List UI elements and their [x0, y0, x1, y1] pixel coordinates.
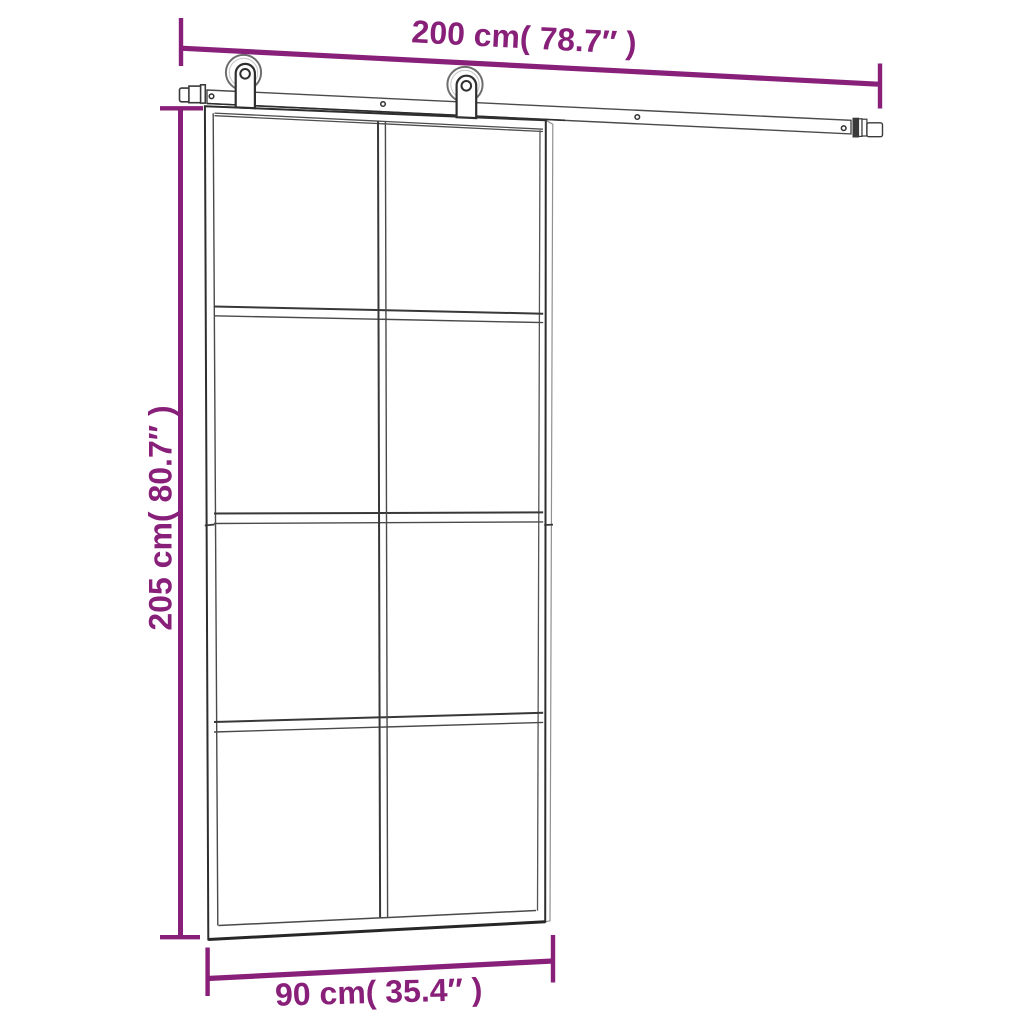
svg-text:90 cm( 35.4″ ): 90 cm( 35.4″ ) — [275, 971, 483, 1013]
svg-text:205 cm( 80.7″ ): 205 cm( 80.7″ ) — [142, 405, 178, 630]
